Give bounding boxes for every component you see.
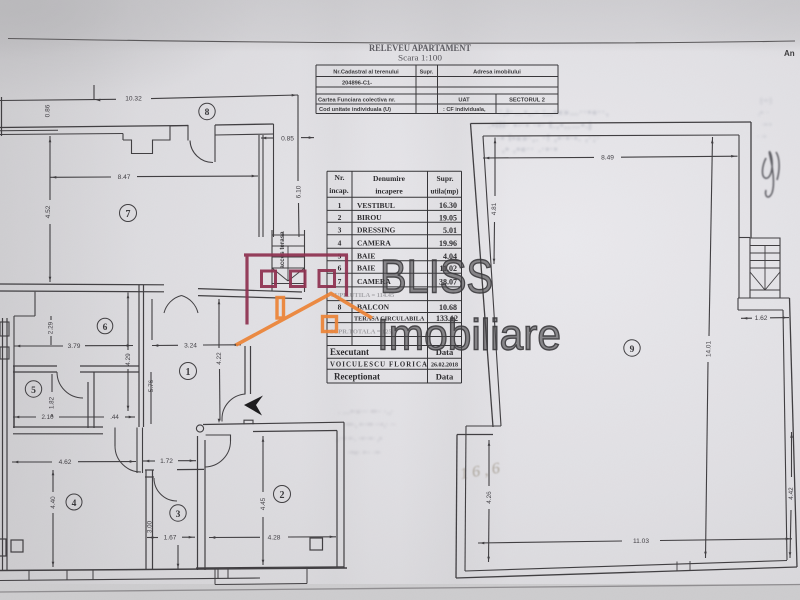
svg-text:· ·•: · ·• <box>757 134 767 141</box>
svg-text:Denumire: Denumire <box>373 174 406 183</box>
svg-text:,• ,•«·· .·•·•: ,• ,•«·· .·•·• <box>502 144 558 154</box>
svg-text:4: 4 <box>72 499 77 509</box>
svg-text:3.00: 3.00 <box>147 520 154 533</box>
svg-text:CAMERA: CAMERA <box>357 239 391 248</box>
svg-text:Scara 1:100: Scara 1:100 <box>398 54 442 63</box>
svg-text:Adresa imobilului: Adresa imobilului <box>473 70 521 76</box>
svg-text:Receptionat: Receptionat <box>334 372 380 382</box>
svg-text:VOICULESCU FLORICA: VOICULESCU FLORICA <box>330 361 428 368</box>
svg-text:3: 3 <box>176 510 181 520</box>
svg-text:Supr.: Supr. <box>420 70 434 76</box>
svg-text:BIROU: BIROU <box>357 213 382 222</box>
svg-text:8.49: 8.49 <box>601 154 614 161</box>
svg-text:SECTORUL 2: SECTORUL 2 <box>509 98 545 104</box>
svg-text:incapere: incapere <box>375 187 403 196</box>
svg-text:2.10: 2.10 <box>41 414 54 421</box>
svg-text:Cod unitate individuala (U): Cod unitate individuala (U) <box>319 107 391 113</box>
svg-text:: CF individuala,: : CF individuala, <box>443 107 486 113</box>
svg-text:5.76: 5.76 <box>148 379 155 392</box>
svg-text:Data: Data <box>436 371 454 381</box>
svg-text:2: 2 <box>338 213 342 222</box>
svg-text:Cartea Funciara colectiva nr.: Cartea Funciara colectiva nr. <box>318 98 396 104</box>
svg-text:·••·, •··•• ··•,· ··: ·••·, •··•• ··•,· ·· <box>344 420 396 429</box>
svg-text:11.03: 11.03 <box>633 538 649 545</box>
svg-text:5.01: 5.01 <box>443 226 457 235</box>
svg-text:1.72: 1.72 <box>160 458 173 465</box>
svg-text:. …•·«··· ••·· ·.,·: . …•·«··· ••·· ·.,· <box>338 407 394 416</box>
svg-text:BLISS: BLISS <box>380 250 493 303</box>
svg-text:4.52: 4.52 <box>45 205 52 218</box>
svg-text:RELEVEU APARTAMENT: RELEVEU APARTAMENT <box>369 44 472 54</box>
svg-text:Nr.: Nr. <box>335 173 345 182</box>
svg-text:4.26: 4.26 <box>486 491 493 504</box>
svg-text:4.40: 4.40 <box>50 496 57 509</box>
svg-text:acces terasa: acces terasa <box>279 231 286 269</box>
svg-text:8: 8 <box>338 303 342 312</box>
svg-text:4.22: 4.22 <box>216 352 223 365</box>
svg-text:DRESSING: DRESSING <box>357 226 396 235</box>
svg-text:Nr.Cadastral al terenului: Nr.Cadastral al terenului <box>333 70 399 76</box>
svg-text:1: 1 <box>186 367 191 378</box>
svg-text:·•·•: ·•·• <box>762 122 772 129</box>
svg-text::,i·…•,.- ;,,•«»…··•«··,: :,i·…•,.- ;,,•«»…··•«··, <box>499 107 609 117</box>
svg-text:An: An <box>784 49 795 58</box>
svg-text:(·•·): (·•·) <box>760 98 772 105</box>
svg-text:Imobiliare: Imobiliare <box>377 311 561 360</box>
svg-text:5: 5 <box>31 386 36 396</box>
svg-text:,··• •·. ·•··•· ,•: ,··• •·. ·•··•· ,• <box>336 434 382 443</box>
svg-text:7: 7 <box>126 209 131 220</box>
svg-text:204896-C1-: 204896-C1- <box>342 81 372 87</box>
svg-text:0.85: 0.85 <box>281 135 294 142</box>
svg-text:.44: .44 <box>110 414 119 421</box>
svg-text:8.47: 8.47 <box>118 174 131 181</box>
svg-text:0.86: 0.86 <box>44 104 51 117</box>
svg-text:7: 7 <box>338 277 342 286</box>
svg-text:Supr.: Supr. <box>436 174 453 183</box>
svg-text:4.45: 4.45 <box>260 497 267 510</box>
svg-text:6: 6 <box>338 264 342 273</box>
svg-text:Executant: Executant <box>330 347 369 357</box>
svg-text:26.02.2018: 26.02.2018 <box>431 362 458 368</box>
svg-text:3: 3 <box>338 226 342 235</box>
svg-text:6: 6 <box>103 323 108 333</box>
svg-text:4.42: 4.42 <box>788 487 795 500</box>
svg-text:19.05: 19.05 <box>439 213 457 222</box>
svg-text:4.81: 4.81 <box>491 202 498 215</box>
svg-text:1.82: 1.82 <box>49 396 56 409</box>
svg-text:BAIE: BAIE <box>357 264 375 273</box>
svg-text:16.30: 16.30 <box>439 201 457 210</box>
svg-text:1.67: 1.67 <box>164 535 177 542</box>
svg-text:UAT: UAT <box>458 98 470 104</box>
svg-text:4.28: 4.28 <box>268 534 281 541</box>
svg-text:3.24: 3.24 <box>184 342 197 349</box>
svg-text:4.62: 4.62 <box>59 459 72 466</box>
svg-text:10.32: 10.32 <box>125 96 142 103</box>
svg-text:14.01: 14.01 <box>705 341 712 357</box>
svg-text:2: 2 <box>280 490 285 501</box>
svg-text:6.10: 6.10 <box>295 185 302 198</box>
svg-text:incap.: incap. <box>329 186 349 195</box>
svg-text:·• i•«»·,. ·! ,•·•·•. ,·;·: ·• i•«»·,. ·! ,•·•·•. ,·;· <box>497 133 601 143</box>
svg-text:BAIE: BAIE <box>357 252 375 261</box>
svg-text:4.29: 4.29 <box>125 353 132 366</box>
svg-text:4: 4 <box>338 239 342 248</box>
svg-text:1: 1 <box>338 201 342 210</box>
svg-text:.•ili· •-·• ·•· t.,•,,…•.j: .•ili· •-·• ·•· t.,•,,…•.j <box>488 120 592 130</box>
svg-text:8: 8 <box>205 108 210 118</box>
svg-text:1.62: 1.62 <box>755 315 768 322</box>
svg-text:VESTIBUL: VESTIBUL <box>357 201 395 210</box>
svg-text:,•· ·: ,•· · <box>758 110 769 117</box>
svg-text:19.96: 19.96 <box>439 239 457 248</box>
svg-text:9: 9 <box>630 345 635 355</box>
svg-text:·•«· •·· ·•·: ·•«· •·· ·•· <box>348 448 381 457</box>
svg-text:3.79: 3.79 <box>68 343 81 350</box>
svg-text:utila(mp): utila(mp) <box>431 188 460 196</box>
svg-text:2.29: 2.29 <box>47 321 54 334</box>
